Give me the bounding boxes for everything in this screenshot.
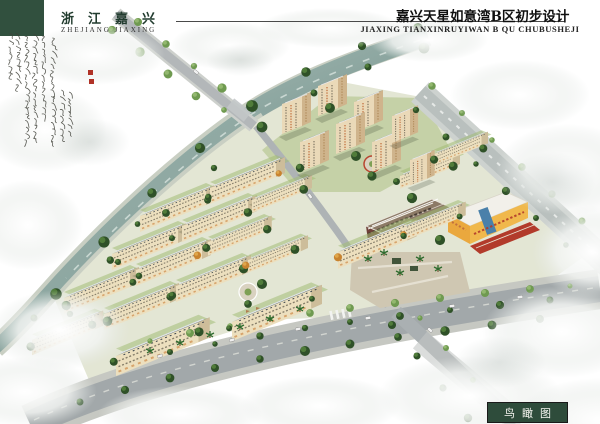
calligraphy-inscription <box>0 28 110 163</box>
sheet-title-en: JIAXING TIANXINRUYIWAN B QU CHUBUSHEJI <box>352 24 588 34</box>
view-label-box: 鸟瞰图 <box>487 402 568 423</box>
view-label: 鸟瞰图 <box>497 405 558 421</box>
red-seal-icon <box>89 79 94 84</box>
region-label-cn: 浙江嘉兴 <box>61 8 169 27</box>
drawing-sheet: 浙江嘉兴 ZHEJIANG JIAXING 嘉兴天星如意湾B区初步设计 JIAX… <box>0 0 600 424</box>
sheet-title-cn: 嘉兴天星如意湾B区初步设计 <box>396 5 566 25</box>
red-seal-icon <box>88 70 93 75</box>
